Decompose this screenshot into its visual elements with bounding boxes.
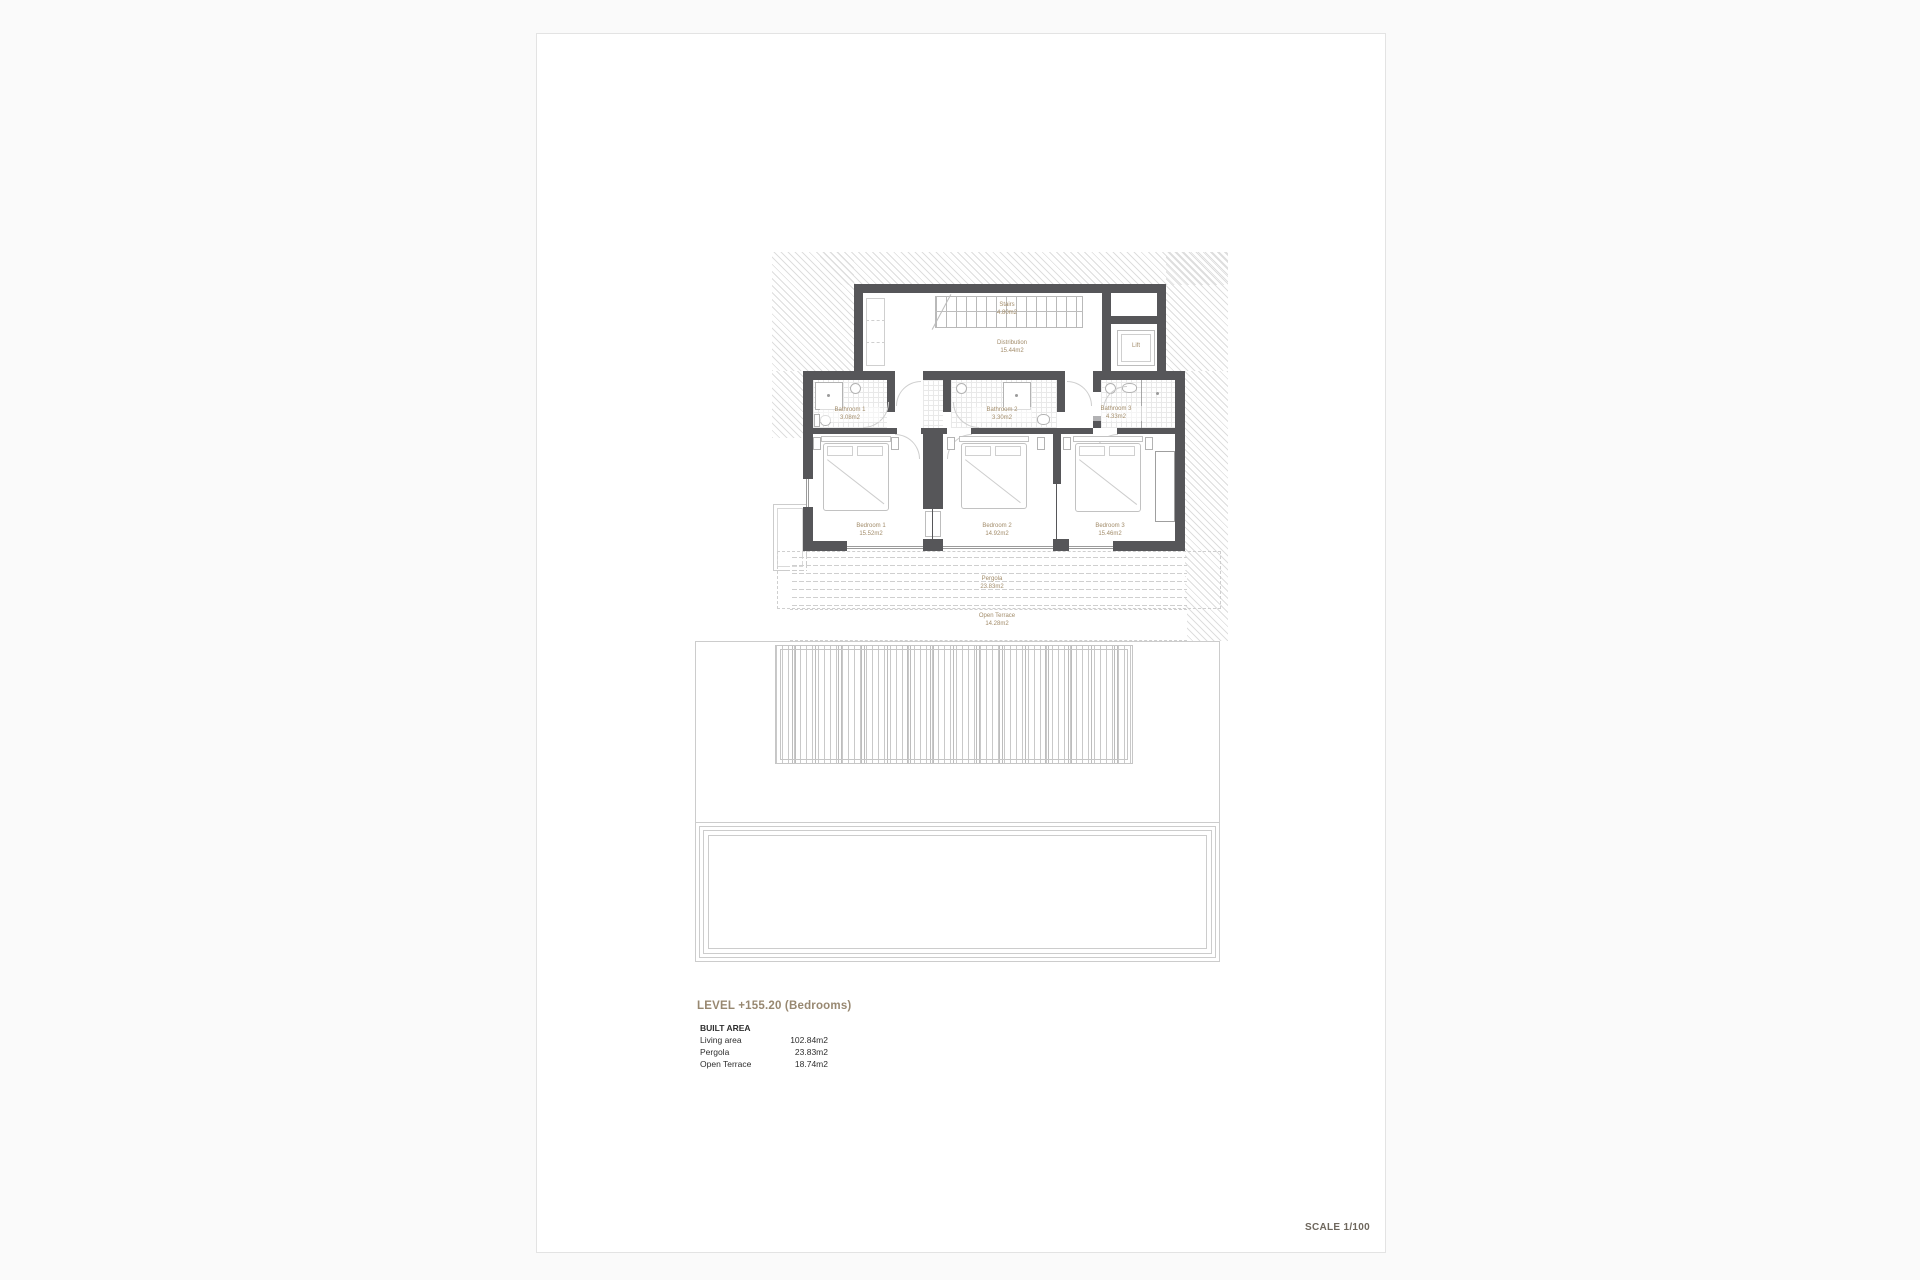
wall <box>803 371 813 479</box>
nightstand-icon <box>813 437 821 450</box>
wall <box>1157 284 1166 380</box>
bathroom2-label: Bathroom 2 3.30m2 <box>972 407 1032 422</box>
wall <box>943 380 951 412</box>
wall <box>803 541 847 551</box>
wall <box>971 428 1093 434</box>
bed-headboard <box>959 436 1029 442</box>
bedroom3-area: 15.46m2 <box>1080 531 1140 539</box>
built-area-title: BUILT AREA <box>700 1023 751 1033</box>
roof-hatch-right <box>1166 252 1228 371</box>
pillow <box>1079 446 1105 456</box>
toilet-icon <box>1037 414 1050 425</box>
duct-block <box>923 434 943 509</box>
window <box>943 546 1053 549</box>
nightstand-icon <box>1063 437 1071 450</box>
bedroom1-label: Bedroom 1 15.52m2 <box>841 523 901 538</box>
built-area-row-value: 102.84m2 <box>790 1035 828 1045</box>
shower-drain-icon <box>827 394 830 397</box>
bedroom1-area: 15.52m2 <box>841 531 901 539</box>
wall <box>923 371 1065 380</box>
bathroom3-label: Bathroom 3 4.33m2 <box>1086 406 1146 421</box>
stairs-name: Stairs <box>977 302 1037 310</box>
closet <box>866 298 885 366</box>
duct-cabinet <box>925 511 941 537</box>
side-window <box>806 479 809 507</box>
distribution-area: 15.44m2 <box>972 348 1052 356</box>
built-area-row: Living area 102.84m2 <box>700 1035 828 1045</box>
wardrobe <box>1155 451 1175 522</box>
stairs-label: Stairs 4.80m2 <box>977 302 1037 317</box>
bed-headboard <box>1073 436 1143 442</box>
bedroom2-area: 14.92m2 <box>967 531 1027 539</box>
pergola-name: Pergola <box>952 576 1032 584</box>
wall <box>1093 371 1185 380</box>
wall <box>1117 428 1185 434</box>
pergola-slats-frame <box>780 649 1128 760</box>
pergola-label: Pergola 23.83m2 <box>952 576 1032 591</box>
nightstand-icon <box>947 437 955 450</box>
lift-name: Lift <box>1121 343 1151 351</box>
pillow <box>995 446 1021 456</box>
sink-icon <box>850 383 861 394</box>
bathroom2-name: Bathroom 2 <box>972 407 1032 415</box>
bathroom3-name: Bathroom 3 <box>1086 406 1146 414</box>
bathroom3-area: 4.33m2 <box>1086 414 1146 422</box>
wall <box>803 371 895 380</box>
door-swing-icon <box>1067 381 1092 406</box>
lift-label: Lift <box>1121 343 1151 351</box>
open-terrace-area: 14.28m2 <box>952 621 1042 629</box>
level-title: LEVEL +155.20 (Bedrooms) <box>697 1000 851 1012</box>
bathroom2-area: 3.30m2 <box>972 415 1032 423</box>
wall <box>1053 539 1069 551</box>
bedroom1-name: Bedroom 1 <box>841 523 901 531</box>
built-area-row-label: Living area <box>700 1035 742 1045</box>
nightstand-icon <box>1037 437 1045 450</box>
duct-tiles <box>923 380 943 431</box>
wall-thin <box>1056 484 1057 546</box>
wall <box>1102 316 1166 324</box>
built-area-row: Open Terrace 18.74m2 <box>700 1059 828 1069</box>
built-area-row-value: 18.74m2 <box>795 1059 828 1069</box>
stairs-area: 4.80m2 <box>977 310 1037 318</box>
pillow <box>857 446 883 456</box>
door-swing-icon <box>896 381 921 406</box>
pillow <box>827 446 853 456</box>
pool-edge-line <box>695 822 1220 823</box>
roof-hatch-left-lower <box>772 371 803 438</box>
bathroom1-name: Bathroom 1 <box>820 407 880 415</box>
scale-label: SCALE 1/100 <box>1305 1222 1370 1233</box>
sink-icon <box>956 383 967 394</box>
built-area-row-label: Open Terrace <box>700 1059 751 1069</box>
shower-drain-icon <box>1156 392 1159 395</box>
closet-shelf <box>866 320 885 321</box>
wall <box>1057 380 1065 412</box>
pool-step-3 <box>708 835 1207 949</box>
wall <box>1102 284 1111 380</box>
drawing-sheet: Pergola 23.83m2 Open Terrace 14.28m2 Sta… <box>536 33 1386 1253</box>
distribution-name: Distribution <box>972 340 1052 348</box>
distribution-label: Distribution 15.44m2 <box>972 340 1052 355</box>
pillow <box>965 446 991 456</box>
wall <box>923 539 943 551</box>
wall <box>921 428 947 434</box>
wall <box>854 284 1166 293</box>
bedroom2-label: Bedroom 2 14.92m2 <box>967 523 1027 538</box>
bedroom3-name: Bedroom 3 <box>1080 523 1140 531</box>
window <box>847 546 923 549</box>
built-area-row: Pergola 23.83m2 <box>700 1047 828 1057</box>
shower-drain-icon <box>1015 394 1018 397</box>
built-area-row-value: 23.83m2 <box>795 1047 828 1057</box>
wall <box>1053 434 1061 484</box>
bed-headboard <box>821 436 891 442</box>
wall <box>1093 380 1101 392</box>
bedroom2-name: Bedroom 2 <box>967 523 1027 531</box>
nightstand-icon <box>891 437 899 450</box>
wall <box>1175 371 1185 551</box>
window <box>1069 546 1113 549</box>
roof-hatch-left <box>772 252 854 371</box>
wall <box>854 284 863 380</box>
open-terrace-name: Open Terrace <box>952 613 1042 621</box>
open-terrace-label: Open Terrace 14.28m2 <box>952 613 1042 628</box>
bedroom3-label: Bedroom 3 15.46m2 <box>1080 523 1140 538</box>
nightstand-icon <box>1145 437 1153 450</box>
closet-shelf <box>866 342 885 343</box>
pergola-area: 23.83m2 <box>952 584 1032 592</box>
wall <box>803 428 897 434</box>
bathroom1-area: 3.08m2 <box>820 415 880 423</box>
wall <box>1113 541 1185 551</box>
bathroom1-label: Bathroom 1 3.08m2 <box>820 407 880 422</box>
built-area-row-label: Pergola <box>700 1047 729 1057</box>
pillow <box>1109 446 1135 456</box>
